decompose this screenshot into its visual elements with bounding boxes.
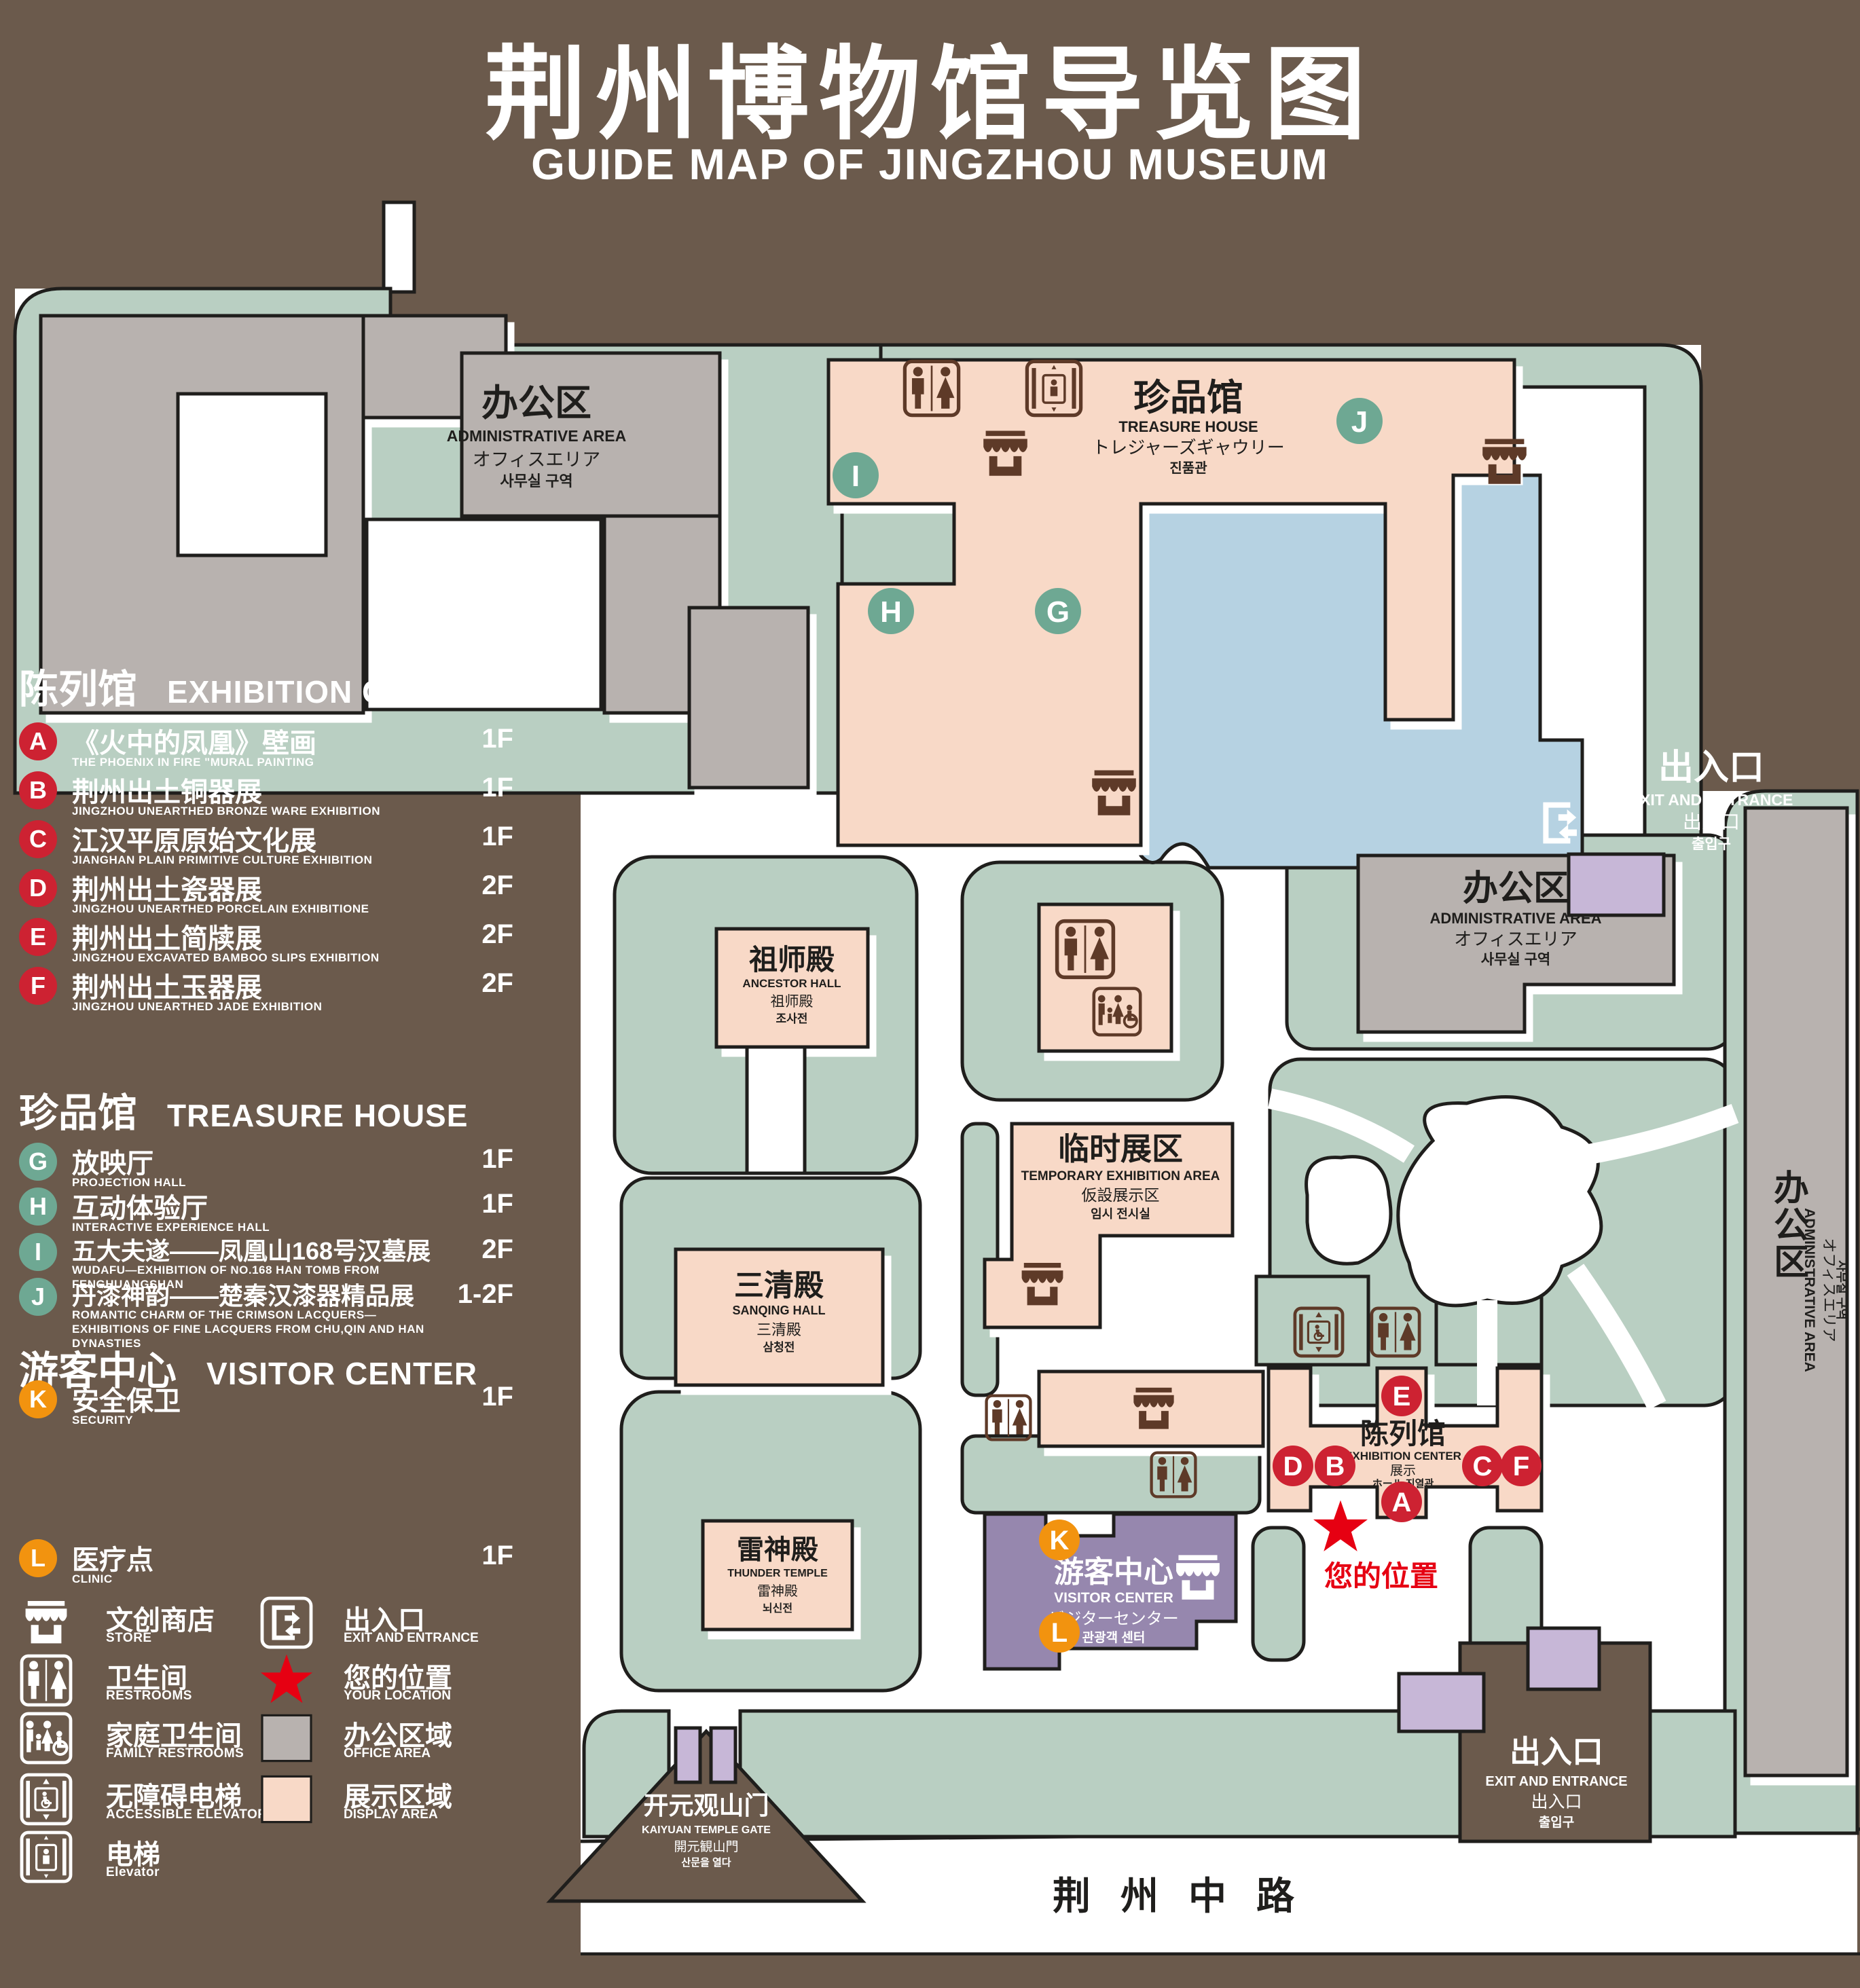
thunder-ko: 뇌신전 <box>763 1602 792 1615</box>
item-en: SECURITY <box>72 1413 466 1427</box>
item-floor: 1F <box>445 822 513 852</box>
badge-d: D <box>19 869 57 907</box>
section-title-zh: 珍品馆 <box>19 1081 137 1138</box>
restrooms-icon <box>19 1653 73 1708</box>
north-gate-notch <box>384 202 414 292</box>
item-floor: 1F <box>445 1189 513 1219</box>
accessible-elevator-icon <box>1295 1308 1343 1356</box>
gate-se-building-east <box>1528 1628 1599 1689</box>
badge-f: F <box>19 967 57 1005</box>
item-en: JIANGHAN PLAIN PRIMITIVE CULTURE EXHIBIT… <box>72 853 466 867</box>
visitor-ko: 관광객 센터 <box>1082 1630 1146 1645</box>
admin-nw-zh: 办公区 <box>481 383 591 424</box>
marker-e-letter: E <box>1393 1382 1411 1412</box>
legend-label-en: RESTROOMS <box>106 1689 192 1704</box>
section-title-en: TREASURE HOUSE <box>167 1097 468 1134</box>
treasure-ko: 진품관 <box>1169 460 1207 476</box>
ancestor-zh: 祖师殿 <box>749 944 835 976</box>
store-icon <box>19 1596 73 1650</box>
gate-se-building-west <box>1399 1674 1484 1731</box>
legend-section-treasure-header: 珍品馆 TREASURE HOUSE <box>19 1081 468 1138</box>
exhibition-ja: 展示 <box>1390 1464 1416 1478</box>
badge-i: I <box>19 1233 57 1271</box>
gate-ne-zh: 出入口 <box>1658 748 1764 788</box>
admin-c-zh: 办公区 <box>1463 869 1569 908</box>
exhibition-en: EXHIBITION CENTER <box>1345 1450 1461 1462</box>
marker-k-letter: K <box>1050 1526 1070 1556</box>
badge-k: K <box>19 1380 57 1418</box>
gate-south-pillar-west <box>676 1728 700 1782</box>
sanqing-zh: 三清殿 <box>734 1269 824 1302</box>
gate-se-ja: 出入口 <box>1531 1792 1582 1811</box>
gate-south-pillar-east <box>711 1728 735 1782</box>
treasure-house-pond <box>1141 475 1582 868</box>
admin-nw-ja: オフィスエリア <box>473 449 600 470</box>
gate-se-en: EXIT AND ENTRANCE <box>1485 1774 1627 1789</box>
gate-ne-ja: 出入口 <box>1683 811 1740 832</box>
marker-c-letter: C <box>1473 1452 1493 1481</box>
temporary-zh: 临时展区 <box>1058 1131 1183 1166</box>
thunder-ja: 雷神殿 <box>757 1583 798 1599</box>
exit-entrance-icon <box>258 1596 315 1650</box>
grass-exhibition-sw <box>1253 1528 1304 1660</box>
ancestor-walkway <box>747 1047 805 1173</box>
legend-section-exhibition-header: 陈列馆 EXHIBITION CENTER <box>19 657 494 714</box>
section-title-zh: 陈列馆 <box>19 657 137 714</box>
item-en: CLINIC <box>72 1572 466 1586</box>
marker-g-letter: G <box>1046 595 1070 629</box>
item-en: JINGZHOU UNEARTHED PORCELAIN EXHIBITIONE <box>72 902 466 916</box>
gate-south-ko: 산문을 열다 <box>681 1857 731 1869</box>
gate-ne-en: EXIT AND ENTRANCE <box>1630 791 1793 809</box>
admin-e-ko: 사무실 구역 <box>1835 1260 1848 1320</box>
section-title-en: VISITOR CENTER <box>206 1355 477 1392</box>
item-floor: 2F <box>445 919 513 950</box>
your-location-label: 您的位置 <box>1324 1560 1438 1592</box>
item-floor: 2F <box>445 1234 513 1265</box>
temporary-ja: 仮設展示区 <box>1082 1186 1160 1204</box>
visitor-zh: 游客中心 <box>1054 1556 1173 1589</box>
item-floor: 2F <box>445 968 513 999</box>
legend-label-en: STORE <box>106 1631 152 1646</box>
road-label: 荆州中路 <box>1053 1875 1324 1917</box>
exhibition-zh: 陈列馆 <box>1360 1418 1446 1450</box>
your-location-star <box>258 1653 315 1708</box>
temporary-en: TEMPORARY EXHIBITION AREA <box>1021 1169 1220 1183</box>
marker-b-letter: B <box>1326 1452 1345 1481</box>
item-en: JINGZHOU UNEARTHED BRONZE WARE EXHIBITIO… <box>72 804 466 818</box>
display-area-swatch <box>258 1772 315 1826</box>
road-south-shoulder <box>577 1955 1860 1988</box>
legend-label-en: OFFICE AREA <box>344 1746 431 1761</box>
gate-se-ko: 출입구 <box>1539 1815 1574 1830</box>
item-floor: 1F <box>445 1382 513 1412</box>
badge-g: G <box>19 1143 57 1181</box>
legend-label-en: ACCESSIBLE ELEVATOR <box>106 1807 268 1822</box>
marker-i-letter: I <box>852 460 860 493</box>
item-floor: 1F <box>445 1144 513 1175</box>
badge-j: J <box>19 1278 57 1316</box>
badge-e: E <box>19 918 57 956</box>
treasure-ja: トレジャーズギャウリー <box>1092 437 1284 458</box>
item-floor: 1F <box>445 1541 513 1571</box>
item-en: JINGZHOU UNEARTHED JADE EXHIBITION <box>72 999 466 1014</box>
gate-se-zh: 出入口 <box>1510 1734 1603 1769</box>
item-floor: 2F <box>445 870 513 901</box>
accessible-elevator-icon <box>19 1772 73 1826</box>
marker-f-letter: F <box>1513 1452 1529 1481</box>
gate-south-zh: 开元观山门 <box>644 1792 769 1820</box>
item-floor: 1F <box>445 724 513 754</box>
elevator-icon <box>19 1830 73 1884</box>
marker-a-letter: A <box>1392 1488 1412 1517</box>
legend-label-en: EXIT AND ENTRANCE <box>344 1631 479 1646</box>
ancestor-ko: 조사전 <box>776 1012 808 1025</box>
visitor-en: VISITOR CENTER <box>1054 1590 1173 1606</box>
badge-l: L <box>19 1539 57 1577</box>
garden-pond-west <box>1307 1157 1391 1264</box>
badge-h: H <box>19 1188 57 1226</box>
ancestor-en: ANCESTOR HALL <box>742 977 841 990</box>
admin-nw-ko: 사무실 구역 <box>500 473 572 490</box>
item-en: THE PHOENIX IN FIRE "MURAL PAINTING <box>72 755 466 769</box>
admin-e-en: ADMINISTRATIVE AREA <box>1802 1208 1817 1372</box>
gate-ne-ko: 출입구 <box>1692 836 1731 852</box>
gate-south-ja: 開元観山門 <box>674 1839 738 1854</box>
guide-map-poster: 荆州博物馆导览图 GUIDE MAP OF JINGZHOU MUSEUM <box>0 0 1860 1988</box>
sanqing-ja: 三清殿 <box>756 1321 801 1338</box>
marker-j-letter: J <box>1351 405 1368 439</box>
legend-label-en: DISPLAY AREA <box>344 1807 438 1822</box>
admin-nw-en: ADMINISTRATIVE AREA <box>447 427 627 445</box>
item-floor: 1F <box>445 773 513 803</box>
marker-d-letter: D <box>1283 1452 1303 1481</box>
badge-c: C <box>19 820 57 858</box>
grass-south-band-east <box>1650 1711 1735 1837</box>
treasure-zh: 珍品馆 <box>1133 378 1243 418</box>
ancestor-ja: 祖师殿 <box>771 994 814 1010</box>
legend-label-en: Elevator <box>106 1865 160 1880</box>
badge-b: B <box>19 771 57 809</box>
sanqing-ko: 삼청전 <box>763 1340 795 1354</box>
thunder-en: THUNDER TEMPLE <box>727 1568 828 1579</box>
building-store <box>1039 1372 1263 1446</box>
section-title-en: EXHIBITION CENTER <box>167 674 494 710</box>
treasure-en: TREASURE HOUSE <box>1118 418 1258 435</box>
admin-c-ko: 사무실 구역 <box>1481 952 1550 968</box>
item-zh: 五大夫遂——凤凰山168号汉墓展 <box>72 1232 431 1267</box>
sanqing-en: SANQING HALL <box>733 1304 826 1317</box>
family-restrooms-icon <box>19 1711 73 1765</box>
thunder-zh: 雷神殿 <box>737 1535 818 1565</box>
gate-ne-building <box>1569 854 1664 915</box>
badge-a: A <box>19 722 57 760</box>
gate-south-en: KAIYUAN TEMPLE GATE <box>642 1824 771 1836</box>
item-zh: 丹漆神韵——楚秦汉漆器精品展 <box>72 1276 414 1312</box>
admin-c-ja: オフィスエリア <box>1454 929 1577 949</box>
item-floor: 1-2F <box>445 1279 513 1310</box>
office-area-swatch <box>258 1711 315 1765</box>
item-en: JINGZHOU EXCAVATED BAMBOO SLIPS EXHIBITI… <box>72 951 466 965</box>
marker-h-letter: H <box>880 595 902 629</box>
legend-label-en: YOUR LOCATION <box>344 1689 451 1704</box>
legend-label-en: FAMILY RESTROOMS <box>106 1746 244 1761</box>
temporary-ko: 임시 전시실 <box>1091 1207 1150 1221</box>
marker-l-letter: L <box>1051 1618 1068 1648</box>
